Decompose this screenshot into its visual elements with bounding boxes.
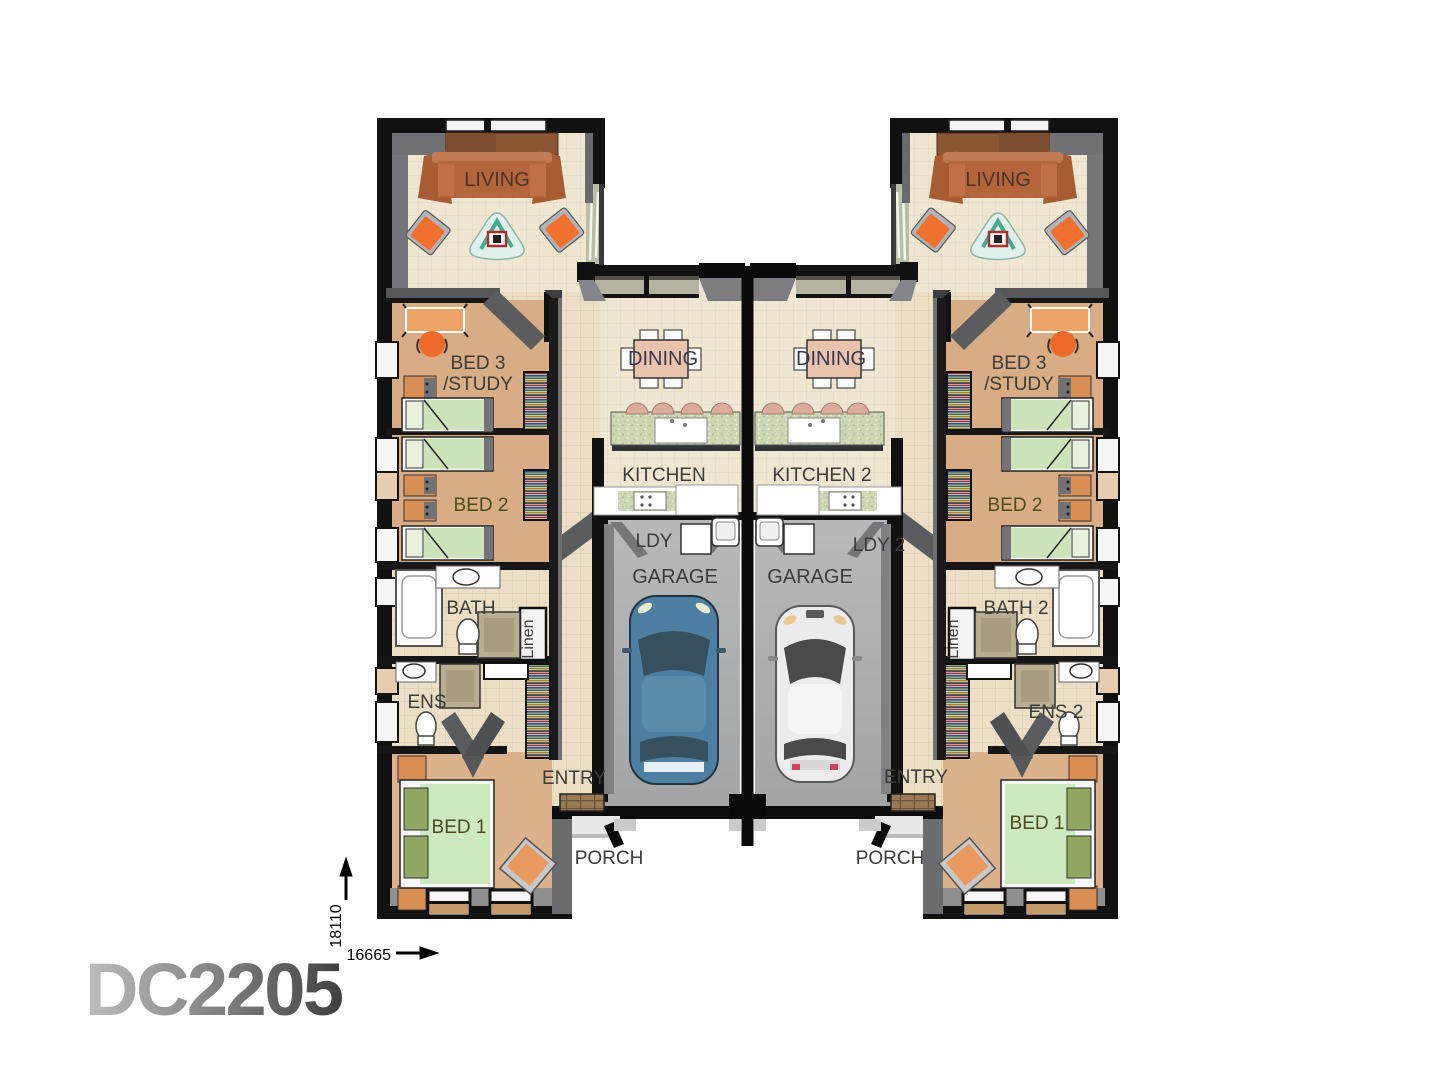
svg-text:ENTRY: ENTRY (884, 767, 948, 788)
svg-text:16665: 16665 (347, 947, 392, 964)
svg-text:DC2205: DC2205 (85, 948, 343, 1031)
svg-text:LDY 2: LDY 2 (853, 535, 905, 556)
svg-text:BED 3: BED 3 (992, 353, 1047, 374)
svg-text:Linen: Linen (520, 619, 537, 658)
svg-text:BED 3: BED 3 (451, 353, 506, 374)
svg-text:ENTRY: ENTRY (542, 768, 606, 789)
svg-text:GARAGE: GARAGE (767, 566, 853, 588)
svg-text:ENS 2: ENS 2 (1029, 702, 1084, 723)
svg-text:KITCHEN 2: KITCHEN 2 (772, 465, 871, 486)
svg-text:BATH: BATH (446, 598, 495, 619)
svg-text:BED 1: BED 1 (432, 817, 487, 838)
svg-text:18110: 18110 (328, 904, 345, 947)
svg-text:LIVING: LIVING (464, 169, 530, 191)
svg-text:ENS: ENS (407, 692, 446, 713)
svg-text:DINING: DINING (628, 348, 698, 370)
svg-text:/STUDY: /STUDY (443, 374, 513, 395)
svg-text:BATH 2: BATH 2 (983, 598, 1048, 619)
svg-text:LIVING: LIVING (965, 169, 1031, 191)
svg-text:KITCHEN: KITCHEN (622, 465, 705, 486)
svg-text:BED 2: BED 2 (454, 495, 509, 516)
svg-text:Linen: Linen (945, 619, 962, 658)
svg-text:LDY: LDY (636, 531, 673, 552)
svg-text:DINING: DINING (796, 348, 866, 370)
svg-text:BED 2: BED 2 (988, 495, 1043, 516)
svg-text:BED 1: BED 1 (1010, 813, 1065, 834)
svg-text:/STUDY: /STUDY (984, 374, 1054, 395)
svg-text:PORCH: PORCH (575, 848, 644, 869)
svg-text:GARAGE: GARAGE (632, 566, 718, 588)
svg-text:PORCH: PORCH (856, 848, 925, 869)
